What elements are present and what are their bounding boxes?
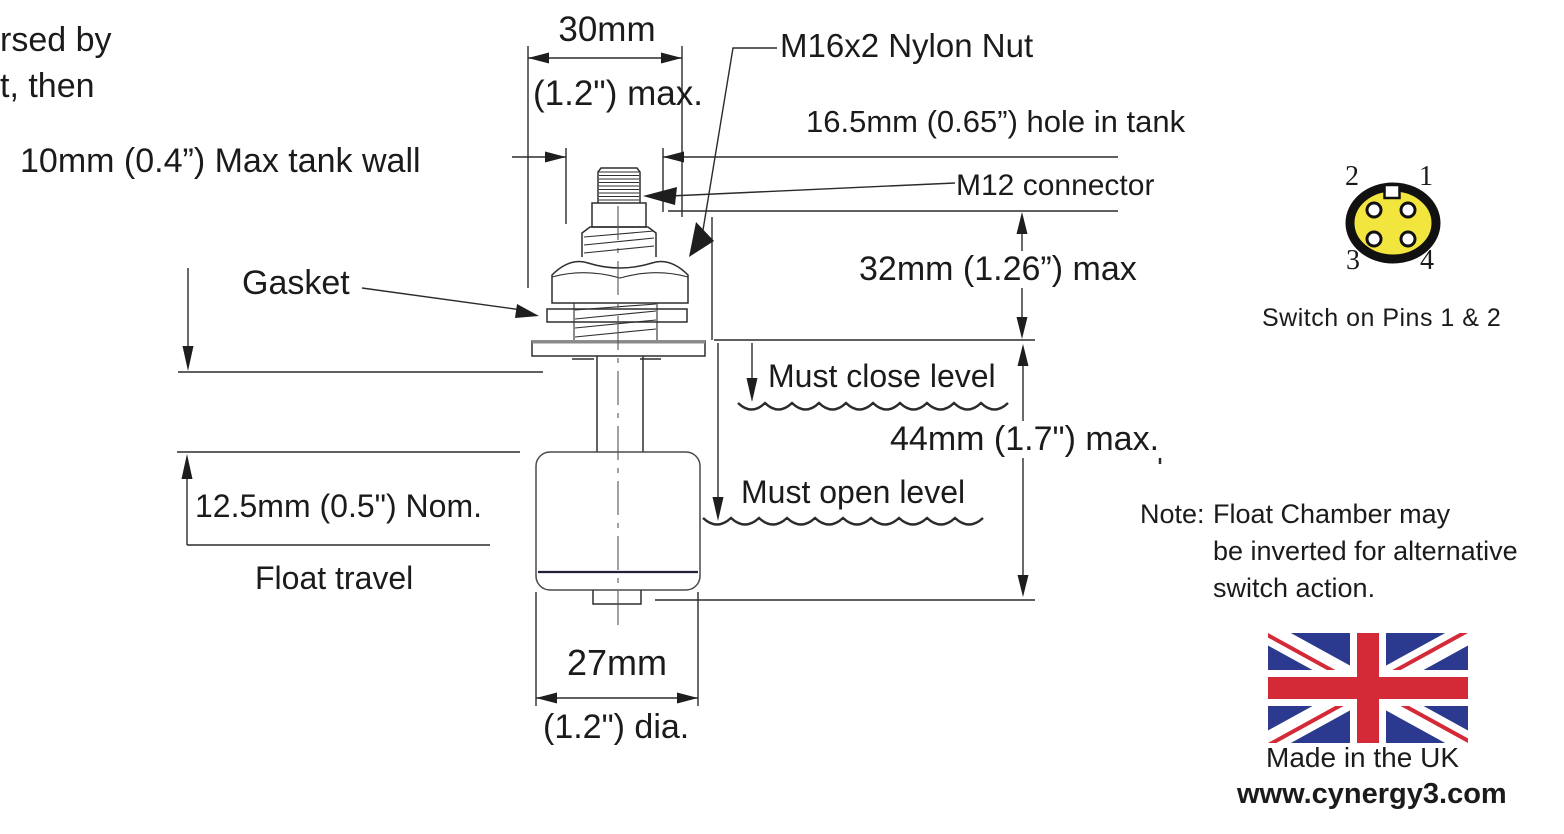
float-travel-value-label: 12.5mm (0.5") Nom. [195,489,482,524]
pin-2-hole [1367,203,1381,217]
water-level-close-wave [738,403,1008,410]
drawing-canvas [0,0,1564,834]
gasket-label: Gasket [242,265,350,302]
keyway-notch [1385,185,1400,198]
m12-leader [670,183,955,196]
note-line-1: Float Chamber may [1213,500,1450,530]
water-level-open-wave [703,518,983,525]
float-switch-datasheet-drawing: rsed by t, then 10mm (0.4”) Max tank wal… [0,0,1564,834]
pin-1-hole [1401,203,1415,217]
dim-27mm-inch-label: (1.2") dia. [543,709,689,746]
max-tank-wall-label: 10mm (0.4”) Max tank wall [20,143,421,180]
made-in-uk-label: Made in the UK [1266,743,1459,774]
pin-4-number: 4 [1420,246,1434,277]
float-travel-label: Float travel [255,561,413,596]
clipped-text-line-2: t, then [0,68,95,105]
pin-4-hole [1401,232,1415,246]
connector-body [592,203,646,227]
nylon-nut-label: M16x2 Nylon Nut [780,28,1033,64]
dim-32mm-label: 32mm (1.26”) max [855,251,1141,288]
pin-3-hole [1367,232,1381,246]
pin-2-number: 2 [1345,162,1359,193]
must-close-level-label: Must close level [768,359,996,394]
dim-30mm-inch-label: (1.2") max. [533,75,703,114]
nylon-nut-leader [703,48,777,230]
note-line-3: switch action. [1213,574,1375,604]
thread-stud [598,168,640,203]
tank-wall-lines [178,268,543,372]
extension-lines [528,46,712,706]
dim-30mm-label: 30mm [537,11,677,50]
note-label: Note: [1140,500,1205,530]
dim-44mm-label: 44mm (1.7") max. [886,421,1163,458]
pin-3-number: 3 [1346,246,1360,277]
lock-collar [582,227,656,257]
gasket-leader [362,288,522,310]
m12-connector-label: M12 connector [956,169,1154,202]
hole-in-tank-label: 16.5mm (0.65”) hole in tank [806,105,1185,139]
gasket-washer [547,309,687,322]
float-bottom-tab [593,590,641,604]
must-open-level-label: Must open level [741,475,965,510]
float-stem [597,356,643,452]
pin-1-number: 1 [1419,162,1433,193]
clipped-text-line-1: rsed by [0,22,112,59]
note-line-2: be inverted for alternative [1213,537,1518,567]
website-label: www.cynergy3.com [1237,779,1507,811]
dim-27mm-label: 27mm [552,643,682,683]
float-switch-drawing [532,168,705,632]
hex-nut [552,262,688,304]
uk-flag [1268,633,1468,743]
switch-pins-caption: Switch on Pins 1 & 2 [1262,305,1501,333]
